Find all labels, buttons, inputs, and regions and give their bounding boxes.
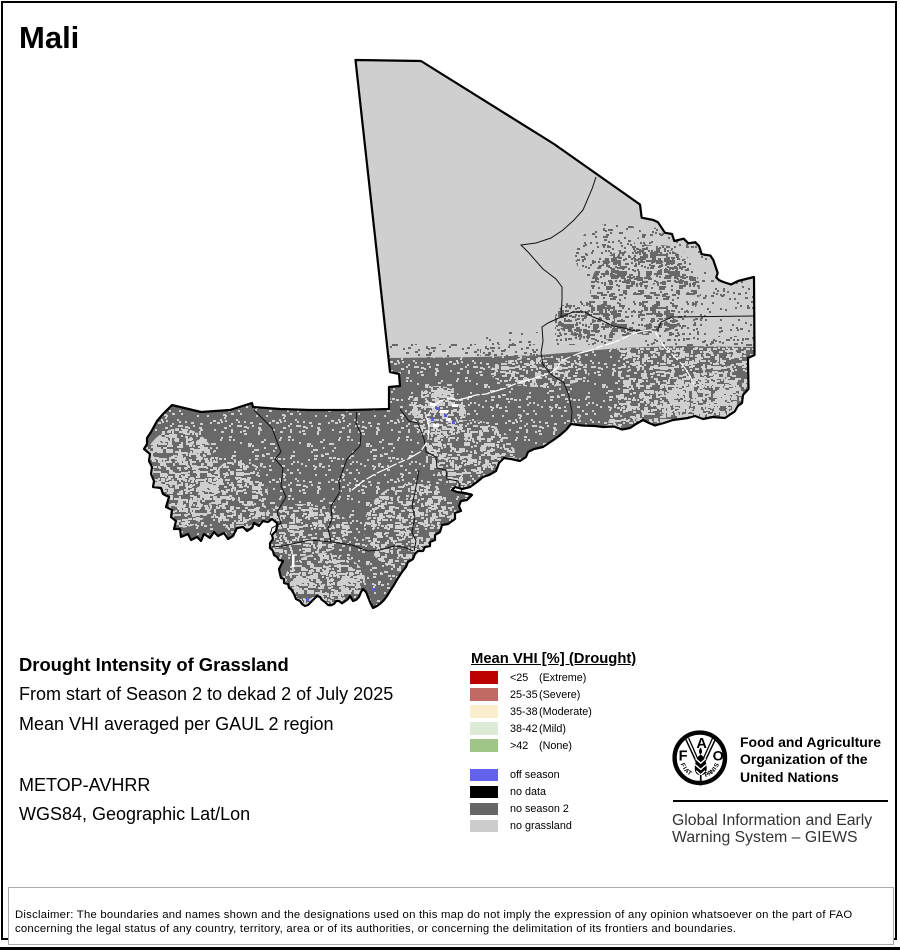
svg-text:A: A [696,736,707,752]
